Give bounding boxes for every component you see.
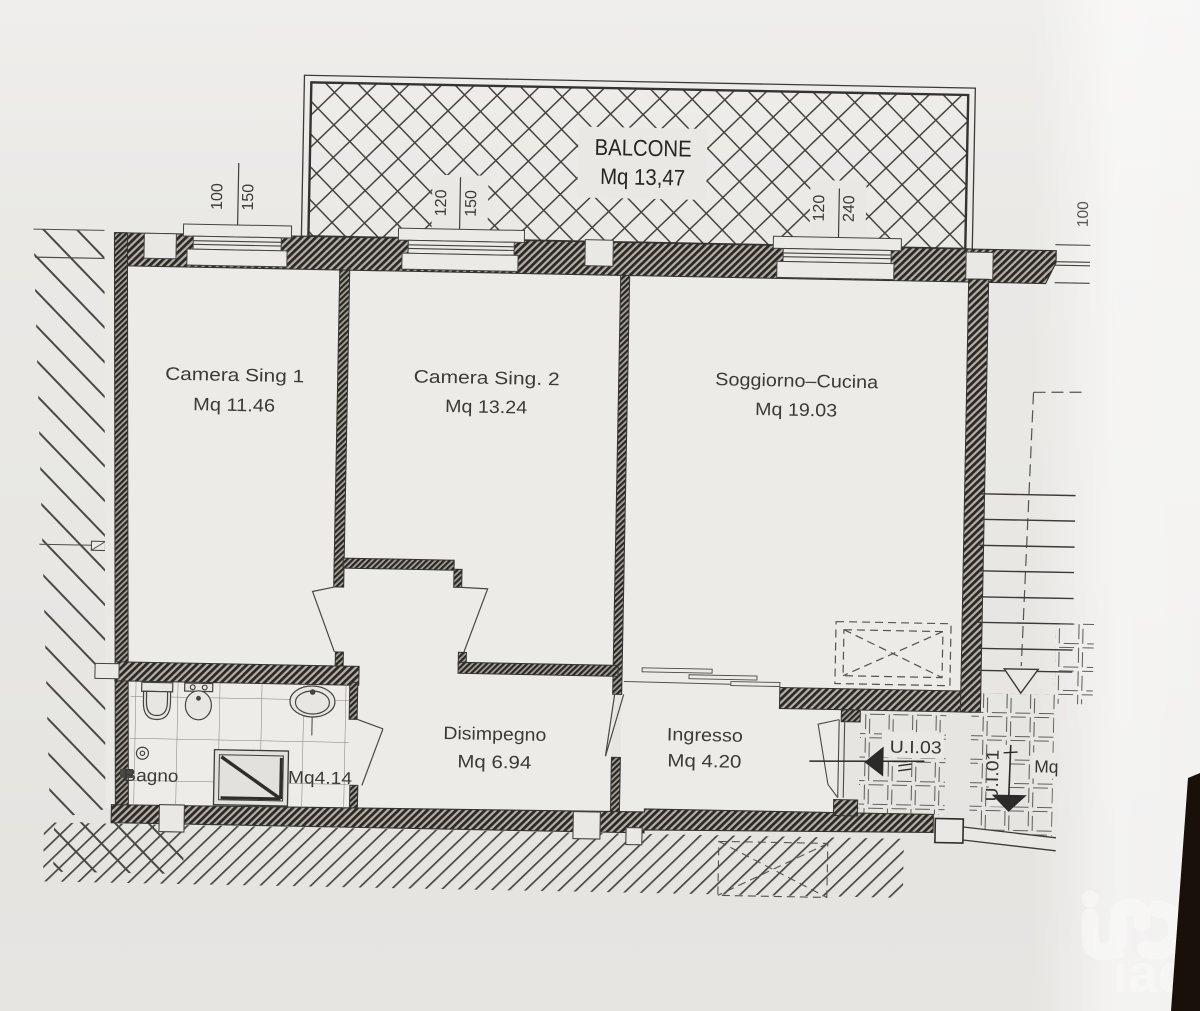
- svg-text:Mq: Mq: [1034, 756, 1059, 776]
- svg-text:Camera Sing. 2: Camera Sing. 2: [414, 366, 560, 389]
- svg-text:Mq4.14: Mq4.14: [288, 767, 353, 788]
- svg-text:120: 120: [433, 189, 451, 216]
- svg-text:Bagno: Bagno: [123, 765, 178, 786]
- svg-text:BALCONE: BALCONE: [594, 134, 691, 162]
- svg-text:100: 100: [1075, 201, 1093, 228]
- svg-text:Ingresso: Ingresso: [667, 724, 743, 745]
- svg-text:Mq 11.46: Mq 11.46: [193, 394, 275, 416]
- svg-text:Mq 6.94: Mq 6.94: [457, 751, 531, 772]
- svg-text:120: 120: [811, 195, 829, 222]
- svg-text:Mq 19.03: Mq 19.03: [755, 399, 837, 421]
- svg-text:150: 150: [240, 184, 258, 211]
- svg-text:U.I.03: U.I.03: [890, 737, 942, 758]
- svg-text:240: 240: [841, 195, 859, 222]
- svg-text:U.I.01: U.I.01: [982, 749, 1003, 801]
- svg-text:Mq 4.20: Mq 4.20: [667, 750, 741, 771]
- svg-text:Soggiorno–Cucina: Soggiorno–Cucina: [715, 369, 879, 392]
- svg-text:150: 150: [463, 190, 481, 217]
- svg-text:Mq 13,47: Mq 13,47: [600, 164, 685, 191]
- svg-text:Camera Sing 1: Camera Sing 1: [165, 364, 304, 387]
- svg-text:100: 100: [209, 183, 227, 210]
- svg-text:Mq 13.24: Mq 13.24: [445, 396, 527, 418]
- svg-text:Disimpegno: Disimpegno: [443, 723, 546, 745]
